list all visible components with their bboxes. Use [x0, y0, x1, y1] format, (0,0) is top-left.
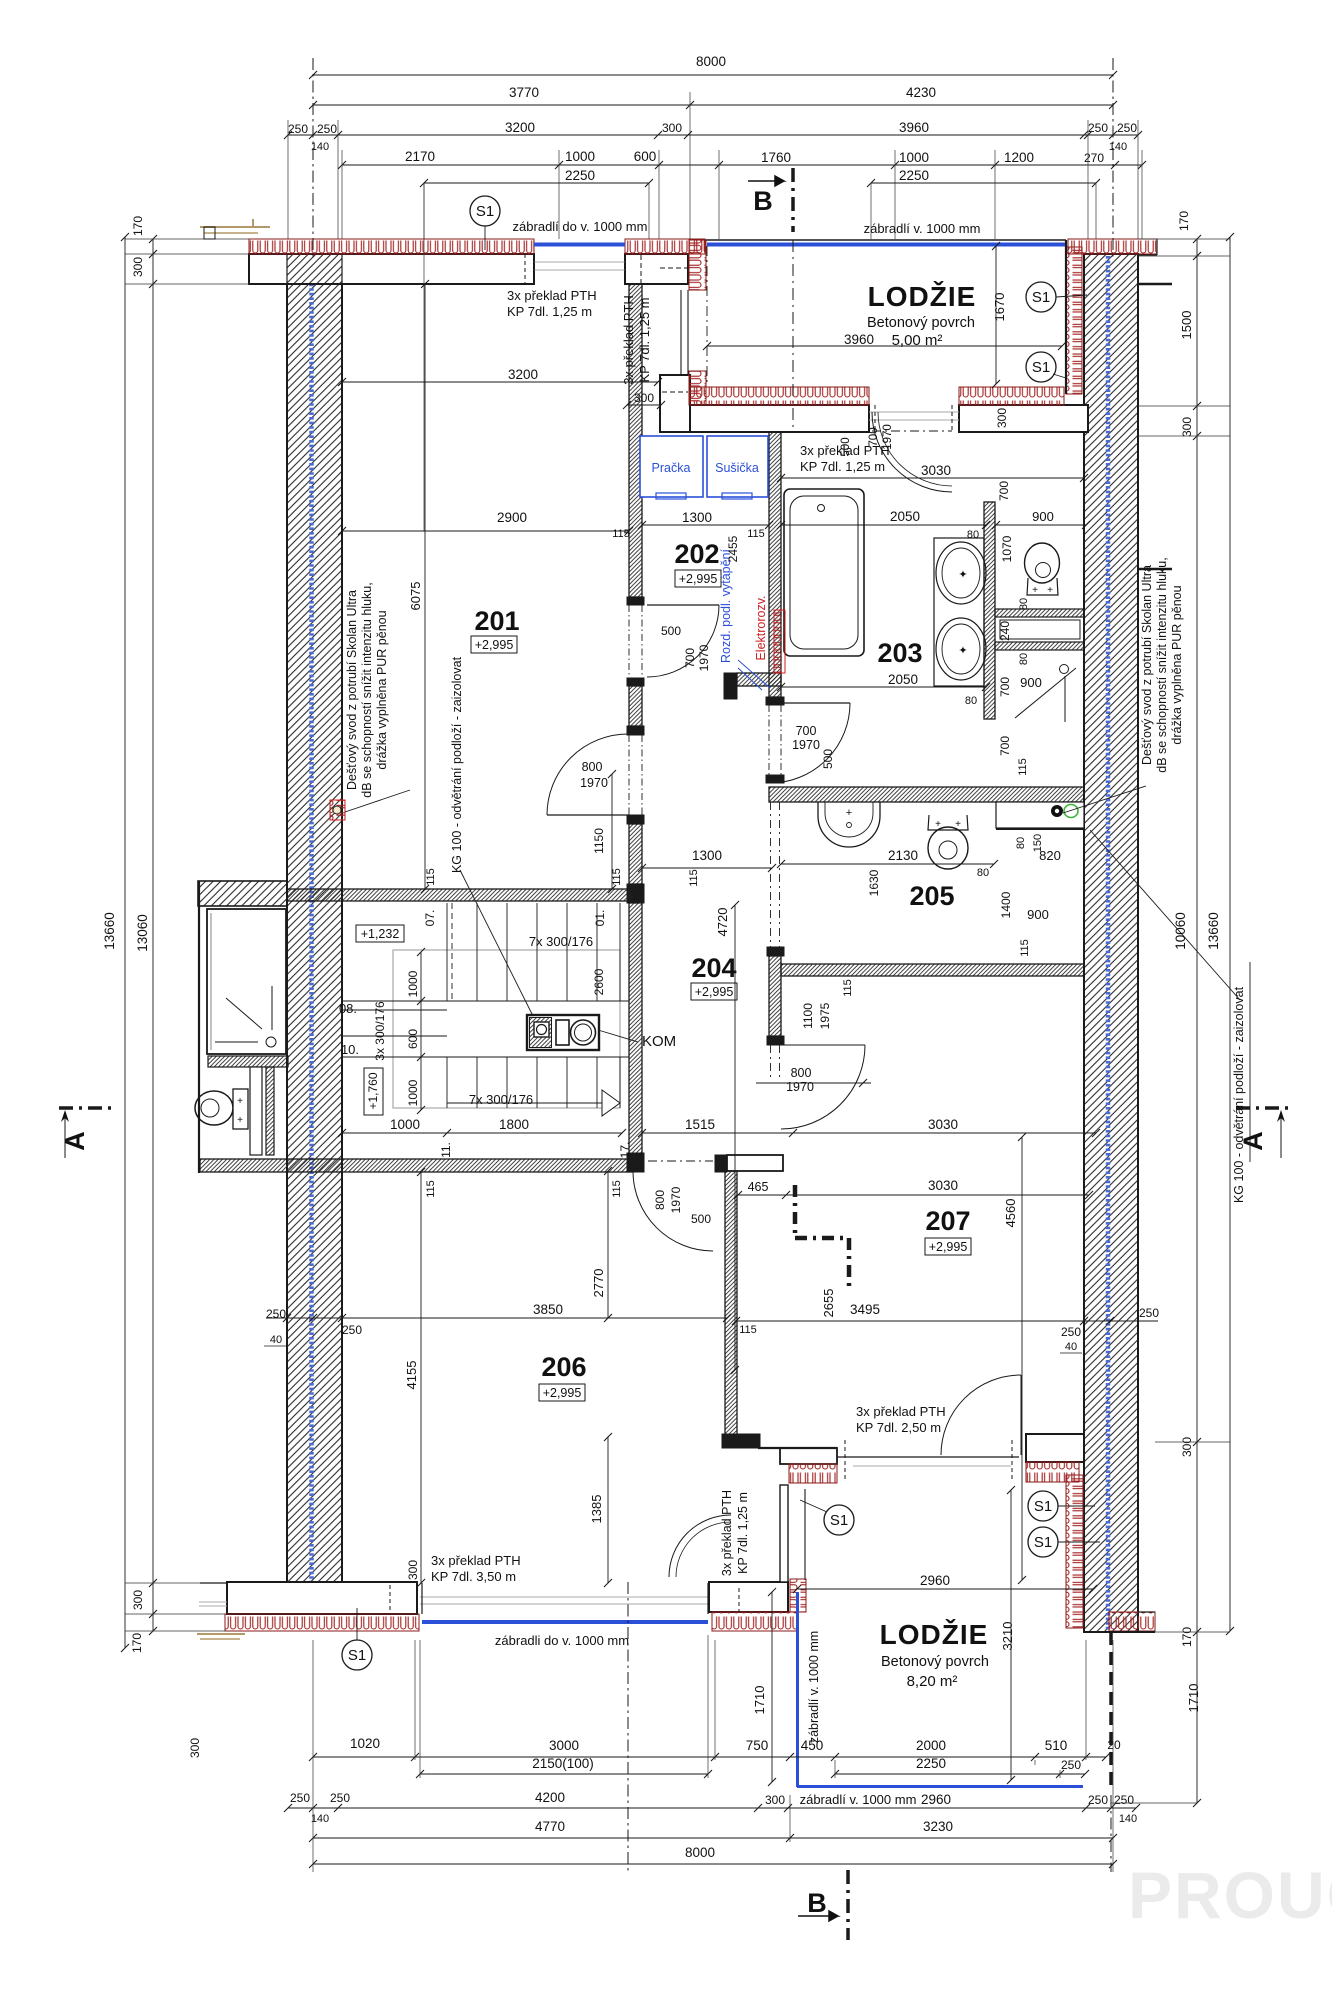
svg-text:S1: S1	[1032, 289, 1050, 306]
svg-text:LODŽIE: LODŽIE	[868, 281, 977, 312]
svg-text:250: 250	[288, 122, 308, 136]
svg-text:300: 300	[131, 257, 145, 277]
svg-text:Dešťový svod z potrubí Skolan: Dešťový svod z potrubí Skolan Ultra	[345, 590, 359, 790]
svg-text:500: 500	[840, 437, 852, 456]
svg-text:3x překlad PTH: 3x překlad PTH	[431, 1553, 521, 1568]
svg-text:+1,760: +1,760	[366, 1072, 380, 1109]
svg-text:450: 450	[801, 1738, 824, 1753]
svg-text:2900: 2900	[497, 510, 527, 525]
svg-text:+2,995: +2,995	[679, 572, 718, 586]
svg-text:1670: 1670	[992, 293, 1007, 322]
svg-text:2770: 2770	[591, 1269, 606, 1298]
svg-text:206: 206	[541, 1352, 586, 1382]
svg-text:20: 20	[1107, 1738, 1121, 1752]
svg-text:207: 207	[925, 1206, 970, 1236]
svg-text:3230: 3230	[923, 1819, 953, 1834]
svg-text:zábradlí v. 1000 mm: zábradlí v. 1000 mm	[800, 1792, 917, 1807]
svg-text:1970: 1970	[669, 1186, 683, 1213]
svg-text:1710: 1710	[752, 1686, 767, 1715]
svg-text:11.: 11.	[439, 1142, 453, 1158]
svg-text:3030: 3030	[921, 463, 951, 478]
svg-text:3030: 3030	[928, 1117, 958, 1132]
svg-text:4720: 4720	[715, 908, 730, 937]
svg-text:zábradlí v. 1000 mm: zábradlí v. 1000 mm	[807, 1631, 821, 1743]
svg-text:1500: 1500	[1179, 311, 1194, 340]
svg-text:80: 80	[1018, 653, 1030, 665]
svg-text:80: 80	[1015, 837, 1027, 849]
svg-text:4200: 4200	[535, 1790, 565, 1805]
svg-text:40: 40	[270, 1334, 282, 1346]
svg-text:750: 750	[746, 1738, 769, 1753]
svg-text:1000: 1000	[899, 150, 929, 165]
svg-text:4155: 4155	[404, 1361, 419, 1390]
svg-text:13660: 13660	[1206, 912, 1221, 950]
svg-text:700: 700	[998, 736, 1012, 756]
svg-text:250: 250	[1139, 1306, 1159, 1320]
svg-text:2655: 2655	[821, 1289, 836, 1318]
svg-text:2050: 2050	[888, 672, 918, 687]
svg-text:240: 240	[998, 621, 1012, 641]
svg-text:600: 600	[406, 1029, 420, 1049]
svg-text:3850: 3850	[533, 1302, 563, 1317]
svg-text:Betonový povrch: Betonový povrch	[881, 1654, 989, 1670]
svg-text:3200: 3200	[505, 120, 535, 135]
svg-text:140: 140	[1119, 1813, 1137, 1825]
svg-text:S1: S1	[830, 1512, 848, 1529]
svg-text:8,20 m²: 8,20 m²	[907, 1673, 958, 1690]
svg-text:250: 250	[330, 1791, 350, 1805]
svg-text:+2,995: +2,995	[543, 1386, 582, 1400]
svg-text:800: 800	[653, 1190, 667, 1210]
svg-text:203: 203	[877, 638, 922, 668]
svg-text:10.: 10.	[341, 1042, 359, 1057]
svg-text:1400: 1400	[999, 891, 1013, 918]
svg-text:dB se schopností snížit intenz: dB se schopností snížit intenzitu hluku,	[360, 582, 374, 797]
svg-text:S1: S1	[1034, 1498, 1052, 1515]
svg-text:2250: 2250	[899, 168, 929, 183]
svg-text:80: 80	[1018, 598, 1030, 610]
svg-text:KG 100 - odvětrání podloží - z: KG 100 - odvětrání podloží - zaizolovat	[450, 656, 464, 873]
svg-text:140: 140	[1109, 141, 1127, 153]
svg-text:+2,995: +2,995	[475, 638, 514, 652]
svg-text:1000: 1000	[406, 1079, 420, 1106]
svg-text:B: B	[753, 186, 773, 216]
svg-text:465: 465	[748, 1180, 769, 1194]
svg-text:2050: 2050	[890, 509, 920, 524]
svg-text:270: 270	[1084, 151, 1104, 165]
svg-text:Sušička: Sušička	[715, 461, 759, 475]
svg-text:3770: 3770	[509, 85, 539, 100]
svg-text:170: 170	[131, 216, 145, 236]
svg-text:900: 900	[1027, 907, 1049, 922]
svg-text:250: 250	[1061, 1758, 1081, 1772]
svg-text:500: 500	[661, 624, 681, 638]
svg-text:zábradlí do v. 1000 mm: zábradlí do v. 1000 mm	[513, 219, 648, 234]
svg-text:+1,232: +1,232	[361, 927, 400, 941]
svg-text:250: 250	[1088, 1793, 1108, 1807]
svg-text:zábradlí v. 1000 mm: zábradlí v. 1000 mm	[864, 221, 981, 236]
svg-text:300: 300	[634, 391, 654, 405]
svg-text:3x překlad PTH: 3x překlad PTH	[720, 1490, 734, 1576]
svg-text:+: +	[237, 1096, 243, 1107]
svg-text:2250: 2250	[565, 168, 595, 183]
svg-text:300: 300	[1180, 417, 1194, 437]
svg-text:250: 250	[266, 1307, 286, 1321]
svg-text:170: 170	[1180, 1627, 1194, 1647]
svg-text:115: 115	[611, 1180, 623, 1198]
svg-text:140: 140	[311, 1813, 329, 1825]
svg-text:600: 600	[634, 149, 657, 164]
svg-text:1020: 1020	[350, 1736, 380, 1751]
svg-text:250: 250	[1114, 1793, 1134, 1807]
svg-text:1760: 1760	[761, 150, 791, 165]
svg-text:800: 800	[582, 760, 603, 774]
svg-text:3960: 3960	[844, 332, 874, 347]
svg-text:17.: 17.	[618, 1142, 632, 1159]
svg-text:80: 80	[977, 867, 989, 879]
svg-text:1385: 1385	[589, 1495, 604, 1524]
svg-text:10060: 10060	[1173, 912, 1188, 950]
svg-text:3200: 3200	[508, 367, 538, 382]
svg-text:700: 700	[683, 648, 697, 668]
svg-text:2960: 2960	[921, 1792, 951, 1807]
svg-text:5,00 m²: 5,00 m²	[892, 332, 943, 349]
svg-text:+2,995: +2,995	[929, 1240, 968, 1254]
svg-text:2960: 2960	[920, 1573, 950, 1588]
svg-text:2150(100): 2150(100)	[532, 1756, 594, 1771]
svg-text:1970: 1970	[580, 776, 608, 790]
svg-text:1970: 1970	[786, 1080, 814, 1094]
svg-text:2455: 2455	[726, 535, 740, 562]
svg-text:250: 250	[342, 1323, 362, 1337]
svg-text:300: 300	[995, 408, 1009, 428]
svg-text:1970: 1970	[882, 424, 894, 450]
svg-text:300: 300	[188, 1738, 202, 1758]
svg-text:2600: 2600	[592, 968, 606, 995]
svg-text:115: 115	[739, 1324, 757, 1336]
svg-text:500: 500	[821, 749, 835, 769]
svg-text:13660: 13660	[102, 912, 117, 950]
svg-text:700: 700	[796, 724, 817, 738]
svg-text:3x překlad PTH: 3x překlad PTH	[507, 288, 597, 303]
svg-text:dB se schopností snížit intenz: dB se schopností snížit intenzitu hluku,	[1155, 557, 1169, 772]
svg-text:900: 900	[1032, 509, 1054, 524]
svg-text:13060: 13060	[135, 914, 150, 952]
svg-text:drážka vyplněna PUR pěnou: drážka vyplněna PUR pěnou	[375, 610, 389, 769]
svg-text:800: 800	[791, 1066, 812, 1080]
svg-text:8000: 8000	[696, 54, 726, 69]
svg-text:1200: 1200	[1004, 150, 1034, 165]
svg-text:Pračka: Pračka	[652, 461, 691, 475]
svg-text:KOM: KOM	[642, 1033, 676, 1050]
svg-text:PROUČKA: PROUČKA	[1128, 1858, 1332, 1932]
svg-text:115: 115	[611, 868, 623, 886]
svg-text:1100: 1100	[801, 1003, 815, 1029]
svg-text:+: +	[846, 807, 852, 819]
svg-text:1070: 1070	[1000, 535, 1014, 562]
svg-text:2000: 2000	[916, 1738, 946, 1753]
svg-text:B: B	[807, 1888, 827, 1918]
svg-text:300: 300	[662, 121, 682, 135]
svg-text:7x 300/176: 7x 300/176	[529, 934, 593, 949]
svg-text:6075: 6075	[408, 582, 423, 611]
svg-text:250: 250	[1088, 121, 1108, 135]
svg-text:7x 300/176: 7x 300/176	[469, 1092, 533, 1107]
svg-text:115: 115	[842, 979, 854, 997]
svg-text:204: 204	[691, 953, 736, 983]
svg-text:201: 201	[474, 606, 519, 636]
svg-text:2130: 2130	[888, 848, 918, 863]
svg-text:700: 700	[868, 427, 880, 446]
svg-text:1300: 1300	[682, 510, 712, 525]
svg-text:250: 250	[290, 1791, 310, 1805]
svg-text:202: 202	[674, 539, 719, 569]
svg-text:KP 7dl. 1,25 m: KP 7dl. 1,25 m	[800, 459, 885, 474]
svg-text:300: 300	[131, 1590, 145, 1610]
svg-text:Rozd. podl. vytápění: Rozd. podl. vytápění	[719, 548, 733, 662]
svg-text:4770: 4770	[535, 1819, 565, 1834]
svg-text:KG 100 - odvětrání podloží - z: KG 100 - odvětrání podloží - zaizolovat	[1232, 986, 1246, 1203]
svg-text:250: 250	[317, 122, 337, 136]
svg-text:LODŽIE: LODŽIE	[880, 1619, 989, 1650]
svg-text:900: 900	[1020, 675, 1042, 690]
svg-text:80: 80	[967, 529, 979, 541]
svg-text:KP 7dl. 1,25 m: KP 7dl. 1,25 m	[637, 297, 652, 382]
svg-text:205: 205	[909, 881, 954, 911]
svg-text:1000: 1000	[390, 1117, 420, 1132]
svg-text:Elektrorozv.: Elektrorozv.	[754, 595, 768, 660]
svg-text:1630: 1630	[867, 869, 881, 896]
svg-text:510: 510	[1045, 1738, 1068, 1753]
svg-text:3x 300/176: 3x 300/176	[373, 1001, 387, 1061]
svg-text:4230: 4230	[906, 85, 936, 100]
svg-text:KP 7dl. 3,50 m: KP 7dl. 3,50 m	[431, 1569, 516, 1584]
svg-text:Betonový povrch: Betonový povrch	[867, 315, 975, 331]
svg-text:KP 7dl. 1,25 m: KP 7dl. 1,25 m	[736, 1492, 750, 1574]
svg-text:3210: 3210	[1000, 1622, 1015, 1651]
svg-text:115: 115	[1019, 939, 1031, 957]
svg-text:1975: 1975	[818, 1002, 832, 1029]
svg-text:+: +	[1047, 585, 1053, 596]
svg-text:Dešťový svod z potrubí Skolan: Dešťový svod z potrubí Skolan Ultra	[1140, 565, 1154, 765]
svg-text:500: 500	[691, 1212, 711, 1226]
svg-text:115: 115	[747, 528, 765, 540]
svg-text:300: 300	[765, 1793, 785, 1807]
svg-text:1150: 1150	[592, 828, 606, 854]
svg-text:1970: 1970	[792, 738, 820, 752]
svg-text:1300: 1300	[692, 848, 722, 863]
svg-text:115: 115	[612, 528, 630, 540]
svg-text:1710: 1710	[1186, 1684, 1201, 1713]
svg-text:+2,995: +2,995	[695, 985, 734, 999]
svg-text:3x překlad PTH: 3x překlad PTH	[621, 295, 636, 385]
svg-text:1000: 1000	[406, 970, 420, 997]
svg-text:300: 300	[1180, 1437, 1194, 1457]
svg-text:700: 700	[998, 677, 1012, 697]
svg-text:08.: 08.	[339, 1001, 357, 1016]
svg-text:3030: 3030	[928, 1178, 958, 1193]
svg-text:80: 80	[965, 695, 977, 707]
svg-text:115: 115	[688, 869, 700, 887]
svg-text:07.: 07.	[423, 910, 437, 927]
svg-text:170: 170	[1177, 211, 1191, 231]
svg-text:2170: 2170	[405, 149, 435, 164]
svg-text:170: 170	[130, 1633, 144, 1653]
svg-text:KP 7dl. 1,25 m: KP 7dl. 1,25 m	[507, 304, 592, 319]
svg-text:115: 115	[1017, 758, 1029, 776]
svg-text:2250: 2250	[916, 1756, 946, 1771]
svg-text:3000: 3000	[549, 1738, 579, 1753]
svg-text:8000: 8000	[685, 1845, 715, 1860]
svg-text:KP 7dl. 2,50 m: KP 7dl. 2,50 m	[856, 1420, 941, 1435]
svg-text:1800: 1800	[499, 1117, 529, 1132]
svg-text:✦: ✦	[958, 645, 967, 657]
svg-text:4560: 4560	[1003, 1199, 1018, 1228]
svg-text:1000: 1000	[565, 149, 595, 164]
svg-text:zábradli do v. 1000 mm: zábradli do v. 1000 mm	[495, 1633, 629, 1648]
svg-text:1515: 1515	[685, 1117, 715, 1132]
svg-text:+: +	[237, 1115, 243, 1126]
svg-text:300: 300	[406, 1560, 420, 1580]
svg-text:3495: 3495	[850, 1302, 880, 1317]
svg-text:+: +	[1032, 585, 1038, 596]
svg-text:01.: 01.	[593, 910, 607, 927]
svg-text:115: 115	[425, 868, 437, 886]
svg-text:3960: 3960	[899, 120, 929, 135]
svg-text:S1: S1	[1034, 1534, 1052, 1551]
svg-text:115: 115	[425, 1180, 437, 1198]
svg-text:drážka vyplněna PUR pěnou: drážka vyplněna PUR pěnou	[1170, 585, 1184, 744]
svg-text:S1: S1	[1032, 359, 1050, 376]
svg-text:700: 700	[997, 481, 1011, 501]
svg-text:150: 150	[1032, 834, 1044, 852]
svg-text:S1: S1	[348, 1647, 366, 1664]
svg-text:S1: S1	[476, 203, 494, 220]
svg-text:250: 250	[1117, 121, 1137, 135]
svg-text:140: 140	[311, 141, 329, 153]
svg-text:1970: 1970	[697, 644, 711, 671]
svg-text:40: 40	[1065, 1341, 1077, 1353]
svg-text:✦: ✦	[958, 569, 967, 581]
svg-text:3x překlad PTH: 3x překlad PTH	[856, 1404, 946, 1419]
svg-text:250: 250	[1061, 1325, 1081, 1339]
